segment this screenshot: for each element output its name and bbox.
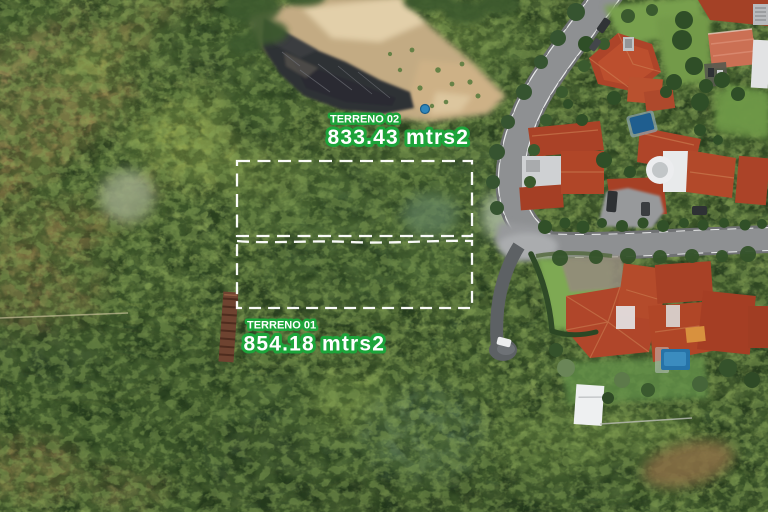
- svg-text:TERRENO 01: TERRENO 01: [247, 320, 316, 332]
- svg-text:854.18 mtrs2: 854.18 mtrs2: [244, 333, 386, 356]
- svg-text:TERRENO 02: TERRENO 02: [330, 114, 399, 126]
- svg-text:833.43 mtrs2: 833.43 mtrs2: [328, 126, 470, 149]
